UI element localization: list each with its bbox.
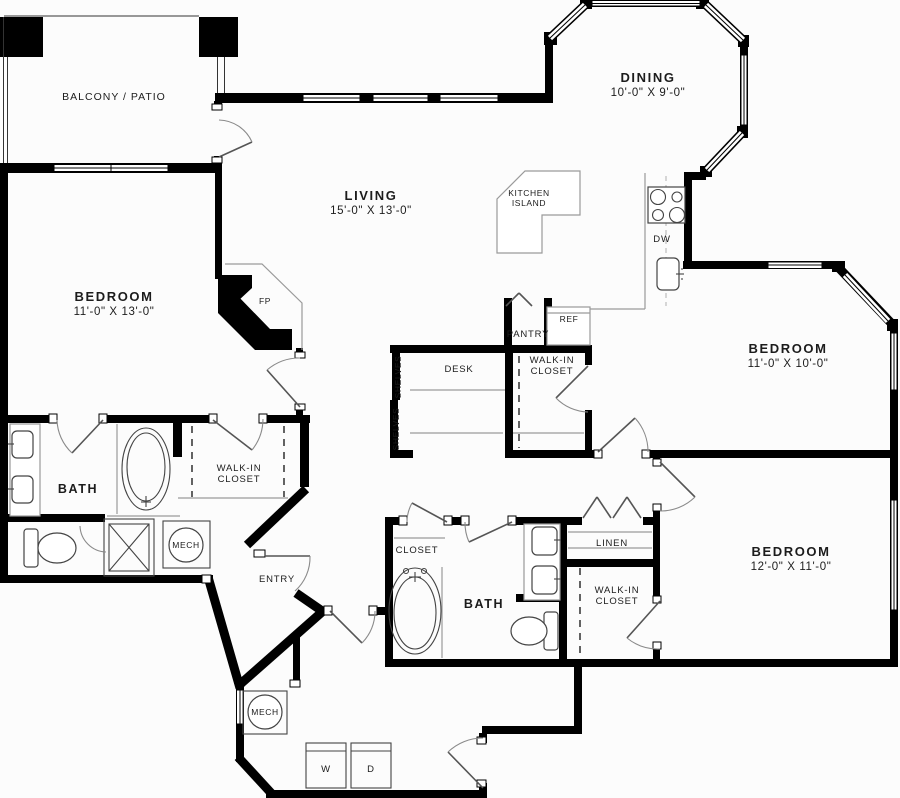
entry-label: ENTRY xyxy=(259,574,295,585)
floor-plan-page: FP xyxy=(0,0,900,798)
living-label: LIVING xyxy=(345,188,398,203)
bay-windows xyxy=(544,0,898,331)
wall-cap xyxy=(832,261,845,272)
wall xyxy=(300,423,309,487)
wall-diagonal xyxy=(238,757,272,794)
dining-label: DINING xyxy=(620,70,675,85)
stove xyxy=(648,187,685,223)
wall-end-plate xyxy=(290,680,300,687)
wall-diagonal xyxy=(237,612,322,687)
fireplace-label: FP xyxy=(259,296,271,306)
column xyxy=(199,17,238,57)
kitchen-island-label-1: KITCHEN xyxy=(508,188,550,198)
window xyxy=(237,690,244,724)
balcony-structure xyxy=(0,16,238,163)
mech-label: MECH xyxy=(172,540,199,550)
window-chamfer-se xyxy=(707,133,742,170)
interior-walls xyxy=(0,173,898,687)
wall xyxy=(574,660,582,733)
wic-bottom-label-1: WALK-IN xyxy=(595,585,640,596)
toilet xyxy=(511,612,558,650)
bedroom-bottom-door xyxy=(653,459,695,511)
window xyxy=(373,95,428,102)
wall xyxy=(585,345,592,365)
laundry-area: MECH W D xyxy=(243,691,391,788)
window xyxy=(54,164,168,172)
balcony-door xyxy=(212,104,252,163)
exterior-walls xyxy=(0,0,898,798)
shelves-label: SHELVES xyxy=(393,356,403,399)
pantry-label: PANTRY xyxy=(507,329,549,340)
wall-cap xyxy=(887,319,898,331)
window-chamfer-ne xyxy=(706,5,743,40)
sink xyxy=(12,476,33,503)
dining-dims: 10'-0" X 9'-0" xyxy=(611,87,686,99)
balcony-label: BALCONY / PATIO xyxy=(62,91,166,103)
wall xyxy=(646,450,898,458)
window xyxy=(891,333,897,390)
bedroom-right-door xyxy=(594,418,650,458)
fireplace: FP xyxy=(218,264,302,350)
wall xyxy=(173,417,182,457)
wall xyxy=(293,632,300,684)
wic-left-label-2: CLOSET xyxy=(218,474,261,485)
window-chamfer-nw xyxy=(550,5,585,38)
hall-door xyxy=(324,606,377,643)
column xyxy=(0,17,43,57)
window xyxy=(741,55,747,125)
linen-label: LINEN xyxy=(596,538,628,549)
dryer-label: D xyxy=(367,764,375,775)
refrigerator-label: REF xyxy=(560,314,579,324)
shower-door-arc xyxy=(80,526,106,552)
bath-main-label: BATH xyxy=(58,482,98,496)
washer: W xyxy=(306,743,346,788)
mech-label: MECH xyxy=(251,707,278,717)
window xyxy=(768,262,822,269)
desk-label: DESK xyxy=(444,364,473,375)
bedroom-right-dims: 11'-0" X 10'-0" xyxy=(748,358,829,370)
labels: BALCONY / PATIO DINING 10'-0" X 9'-0" LI… xyxy=(58,70,832,611)
wall-diagonal xyxy=(296,593,325,613)
wic-left-label-1: WALK-IN xyxy=(217,463,262,474)
fireplace-mass xyxy=(218,290,292,350)
kitchen-island-label-2: ISLAND xyxy=(512,198,546,208)
wall xyxy=(505,345,513,458)
bathtub xyxy=(122,428,170,510)
toilet xyxy=(24,529,76,567)
wic-top-label-1: WALK-IN xyxy=(530,355,575,366)
bath-second-label: BATH xyxy=(464,597,504,611)
mechanical-closet: MECH xyxy=(243,691,287,734)
wall xyxy=(482,726,582,734)
wic-top-label-2: CLOSET xyxy=(531,366,574,377)
shelves-label: SHELVES xyxy=(391,408,401,451)
bedroom-bottom-label: BEDROOM xyxy=(751,544,830,559)
walk-in-closet-left xyxy=(178,426,288,498)
bedroom-left-door xyxy=(267,352,305,410)
washer-label: W xyxy=(321,764,331,775)
dishwasher-label: DW xyxy=(653,234,670,245)
wall xyxy=(545,39,553,99)
wall-diagonal xyxy=(208,577,240,688)
window xyxy=(440,95,498,102)
wall-end-plate xyxy=(202,575,211,583)
door-opening xyxy=(405,516,447,526)
wic-bottom-label-2: CLOSET xyxy=(596,596,639,607)
window xyxy=(303,95,360,102)
door-opening xyxy=(53,414,103,424)
bedroom-right-label: BEDROOM xyxy=(748,341,827,356)
wall xyxy=(505,450,592,458)
dryer: D xyxy=(351,743,391,788)
bedroom-left-label: BEDROOM xyxy=(74,289,153,304)
sink xyxy=(532,527,557,555)
bath-main-fixtures: MECH xyxy=(8,424,288,576)
wall xyxy=(385,659,898,667)
front-door xyxy=(448,737,486,788)
sink xyxy=(12,431,33,458)
wall xyxy=(585,410,592,458)
sink xyxy=(532,566,557,594)
closet-label: CLOSET xyxy=(396,545,439,556)
door-opening xyxy=(213,414,263,424)
bathtub xyxy=(389,568,441,654)
kitchen-sink xyxy=(657,258,684,290)
kitchen-island xyxy=(497,171,580,253)
window xyxy=(891,500,897,610)
wall xyxy=(215,173,222,279)
window xyxy=(592,1,700,7)
wall xyxy=(390,345,592,353)
wall xyxy=(266,790,487,798)
window-chamfer-bedroom xyxy=(845,275,888,321)
wall xyxy=(653,508,660,601)
bedroom-bottom-dims: 12'-0" X 11'-0" xyxy=(751,561,832,573)
living-dims: 15'-0" X 13'-0" xyxy=(330,205,412,217)
mechanical-closet: MECH xyxy=(163,521,210,568)
floor-plan-drawing: FP xyxy=(0,0,900,798)
wall xyxy=(560,559,660,567)
shower xyxy=(80,519,154,576)
bedroom-left-dims: 11'-0" X 13'-0" xyxy=(74,306,155,318)
